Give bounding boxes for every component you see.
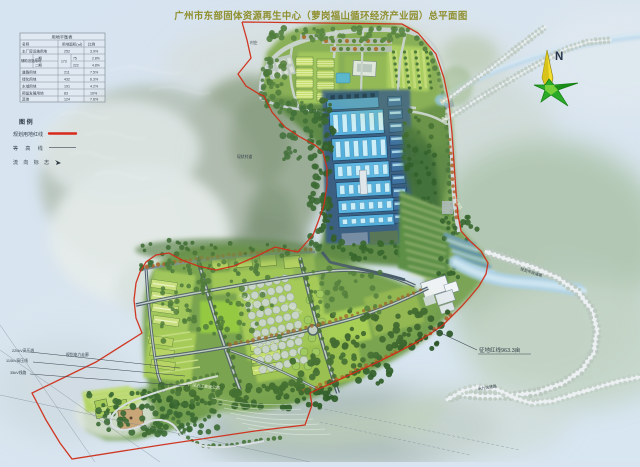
svg-text:水域用地: 水域用地 xyxy=(22,84,37,89)
svg-text:二期: 二期 xyxy=(35,63,42,68)
svg-text:173: 173 xyxy=(61,60,67,64)
svg-text:图 例: 图 例 xyxy=(19,118,33,126)
svg-text:预留发展用地: 预留发展用地 xyxy=(22,91,44,96)
svg-text:一期: 一期 xyxy=(35,56,42,61)
svg-text:3.9%: 3.9% xyxy=(90,50,99,54)
svg-text:用地平衡表: 用地平衡表 xyxy=(52,34,74,41)
svg-text:道路用地: 道路用地 xyxy=(22,70,37,75)
svg-text:用地面积(㎡): 用地面积(㎡) xyxy=(62,42,82,47)
svg-text:4.8%: 4.8% xyxy=(92,64,100,68)
svg-text:4.2%: 4.2% xyxy=(90,85,99,89)
svg-text:252: 252 xyxy=(64,50,70,54)
svg-text:现状村道: 现状村道 xyxy=(237,154,252,159)
svg-text:规划电力走廊: 规划电力走廊 xyxy=(66,352,89,357)
svg-text:6.3%: 6.3% xyxy=(90,78,99,82)
svg-text:83: 83 xyxy=(64,92,68,96)
svg-text:7.6%: 7.6% xyxy=(90,98,99,102)
svg-text:等 高 线: 等 高 线 xyxy=(13,145,46,152)
svg-text:211: 211 xyxy=(64,71,70,75)
svg-text:征地红线963.3亩: 征地红线963.3亩 xyxy=(479,346,521,354)
svg-text:绿化用地: 绿化用地 xyxy=(22,77,37,82)
svg-text:10%: 10% xyxy=(90,92,98,96)
svg-text:35kV线路: 35kV线路 xyxy=(10,370,26,375)
svg-text:村庄: 村庄 xyxy=(250,40,258,45)
svg-text:流 向 标 志: 流 向 标 志 xyxy=(13,159,51,166)
svg-text:75: 75 xyxy=(73,57,77,61)
svg-text:222: 222 xyxy=(73,64,79,68)
svg-text:7.5%: 7.5% xyxy=(90,71,99,75)
svg-text:广州市东部固体资源再生中心（萝岗福山循环经济产业园）总平面图: 广州市东部固体资源再生中心（萝岗福山循环经济产业园）总平面图 xyxy=(174,10,467,21)
svg-text:2.8%: 2.8% xyxy=(92,57,100,61)
svg-text:220kV高压线: 220kV高压线 xyxy=(12,348,34,353)
svg-text:其他: 其他 xyxy=(22,97,30,102)
svg-text:比例: 比例 xyxy=(88,42,96,47)
svg-text:N: N xyxy=(555,51,563,63)
svg-text:124: 124 xyxy=(64,98,70,102)
svg-text:规划用地红线: 规划用地红线 xyxy=(13,131,43,138)
svg-text:名称: 名称 xyxy=(22,42,30,47)
svg-text:191: 191 xyxy=(64,85,70,89)
svg-text:主厂房设施用地: 主厂房设施用地 xyxy=(22,49,48,54)
svg-text:432: 432 xyxy=(64,78,70,82)
